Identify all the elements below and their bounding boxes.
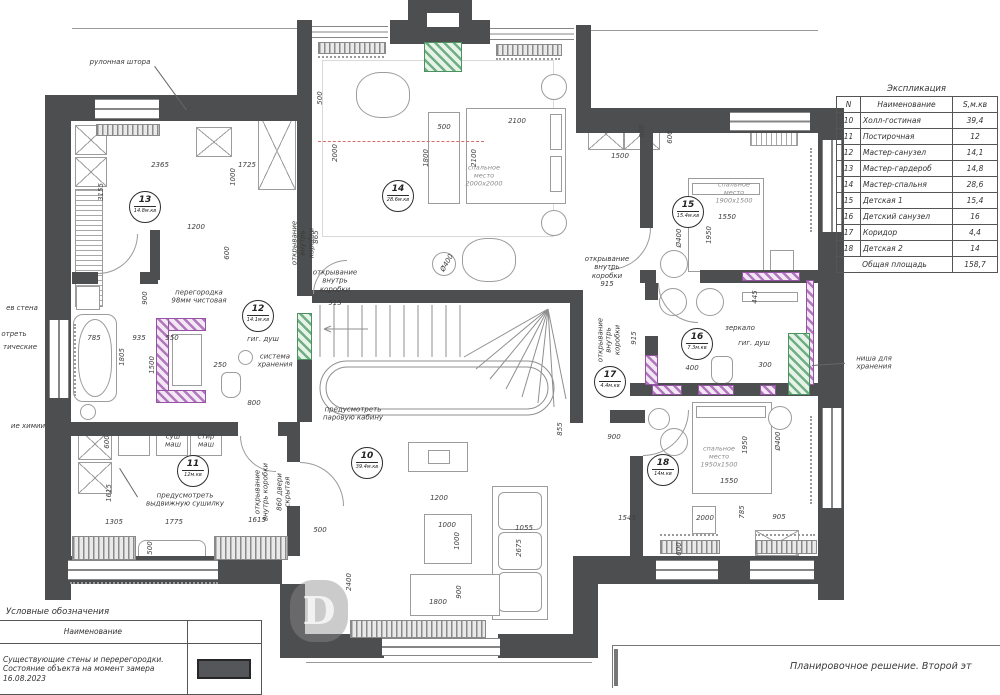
wall [610, 410, 645, 423]
dimension-label: 2400 [345, 573, 353, 591]
dimension-label: 1055 [515, 524, 533, 532]
dimension-label: 1800 [422, 149, 430, 167]
plan-annotation: перегородка 98мм чистовая [171, 289, 226, 306]
room-badge: 1314.8м.кв [129, 191, 161, 223]
shelf-unit [258, 112, 296, 190]
explication-row: 11Постирочная12 [837, 129, 998, 145]
bathtub-inner [78, 319, 112, 397]
dimension-label: 1000 [453, 532, 461, 550]
plan-annotation: предусмотреть выдвижную сушилку [146, 492, 224, 509]
room-badge: 1214.1м.кв [242, 300, 274, 332]
wall [297, 122, 312, 296]
plan-annotation: суш маш [165, 433, 181, 450]
room-name: Постирочная [861, 129, 953, 145]
room-number: 16 [837, 209, 861, 225]
total-label: Общая площадь [837, 257, 953, 273]
room-number: 17 [837, 225, 861, 241]
toilet [711, 356, 733, 384]
dimension-label: 785 [738, 505, 746, 518]
new-partition [698, 385, 734, 395]
dimension-label: 800 [247, 399, 260, 407]
dimension-label: 3155 [97, 183, 105, 201]
outline-line [72, 28, 298, 29]
radiator [72, 536, 136, 560]
room-badge: 1515.4м.кв [672, 196, 704, 228]
window [656, 560, 718, 580]
dimension-label: 900 [141, 291, 149, 304]
dimension-label: 1200 [430, 494, 448, 502]
new-partition [156, 390, 206, 403]
new-partition [652, 385, 682, 395]
dimension-label: 1725 [238, 161, 256, 169]
wall [287, 436, 300, 462]
room-number: 10 [837, 113, 861, 129]
room-badge: 1112м.кв [177, 455, 209, 487]
curtain-wave [810, 148, 812, 232]
plan-annotation: спальное место 1900х1500 [716, 181, 753, 204]
room-area: 14 [953, 241, 998, 257]
radiator [214, 536, 288, 560]
stairs [312, 303, 568, 421]
dimension-label: 1805 [118, 348, 126, 366]
dimension-label: 865 [312, 230, 320, 243]
frame-line [612, 645, 1000, 646]
dimension-label: 900 [607, 433, 620, 441]
door-swing [658, 283, 698, 323]
dimension-label: 500 [437, 123, 450, 131]
plan-annotation: предусмотреть паровую кабину [323, 406, 383, 423]
sheet-title: Планировочное решение. Второй эт [790, 661, 972, 672]
explication-header-row: N Наименование S,м.кв [837, 97, 998, 113]
room-number: 18 [837, 241, 861, 257]
symbols-legend-text: Существующие стены и перерегородки. Сост… [0, 644, 187, 695]
frame-line [612, 645, 613, 688]
symbols-legend: Условные обозначения Наименование Сущест… [0, 607, 262, 695]
dimension-label: 600 [103, 435, 111, 448]
dimension-label: 2365 [151, 161, 169, 169]
room-name: Мастер-спальня [861, 177, 953, 193]
explication-row: 17Коридор4,4 [837, 225, 998, 241]
curtain-wave [496, 58, 560, 60]
new-partition [742, 272, 800, 281]
existing-wall-symbol [197, 659, 251, 679]
dimension-label: 900 [455, 585, 463, 598]
room-area: 12 [953, 129, 998, 145]
room-badge: 174.4м.кв [594, 366, 626, 398]
explication-row: 14Мастер-спальня28,6 [837, 177, 998, 193]
room-badge: 1814м.кв [647, 454, 679, 486]
plan-annotation: отреть [1, 330, 26, 338]
dimension-label: 1550 [720, 477, 738, 485]
dimension-label: 2675 [515, 539, 523, 557]
plan-annotation: открывание внутрь коробки [596, 318, 621, 362]
dimension-label: 1615 [248, 516, 266, 524]
plan-annotation: зеркало [725, 324, 755, 332]
explication-rows: N Наименование S,м.кв 10Холл-гостиная39,… [837, 97, 998, 257]
wall [640, 270, 656, 283]
radiator [318, 42, 386, 54]
wall [278, 422, 300, 436]
dimension-label: 2100 [470, 149, 478, 167]
wall [297, 360, 312, 422]
dimension-label: 250 [213, 361, 226, 369]
dimension-label: 935 [132, 334, 145, 342]
dimension-label: 785 [87, 334, 100, 342]
room-number: 11 [837, 129, 861, 145]
room-name: Мастер-санузел [861, 145, 953, 161]
dimension-label: 1305 [105, 518, 123, 526]
dimension-label: 1500 [148, 356, 156, 374]
room-name: Детская 2 [861, 241, 953, 257]
room-number: 12 [837, 145, 861, 161]
wall [630, 456, 643, 556]
new-partition [760, 385, 776, 395]
room-number: 14 [837, 177, 861, 193]
radiator [660, 540, 720, 554]
dimension-label: 600 [666, 130, 674, 143]
room-number: 15 [837, 193, 861, 209]
armchair [462, 238, 516, 282]
toilet [221, 372, 241, 398]
wall [573, 556, 598, 636]
room-name: Мастер-гардероб [861, 161, 953, 177]
radiator [350, 620, 486, 638]
dimension-label: 1545 [618, 514, 636, 522]
explication-total-row: Общая площадь 158,7 [837, 257, 998, 273]
curtain-wave [70, 582, 218, 584]
wall [297, 20, 312, 122]
new-partition [645, 355, 658, 385]
centerline [318, 141, 484, 142]
dimension-label: 2000 [696, 514, 714, 522]
dimension-label: 1615 [105, 484, 113, 502]
door-swing [300, 462, 344, 506]
door-swing [98, 234, 138, 274]
chimney-notch [426, 12, 460, 28]
window [382, 638, 500, 656]
curtain-wave [810, 416, 812, 504]
dimension-label: 1800 [429, 598, 447, 606]
plan-annotation: стир маш [198, 433, 215, 450]
plan-annotation: ев стена [6, 304, 38, 312]
dimension-label: 2000 [331, 144, 339, 162]
nightstand [541, 74, 567, 100]
plan-annotation: спальное место 1950х1500 [701, 445, 738, 468]
plan-annotation: открывание внутрь коробки [254, 463, 271, 521]
room-badge: 1428.6м.кв [382, 180, 414, 212]
plan-annotation: открывание внутрь коробки 915 [585, 255, 629, 289]
col-header-area: S,м.кв [953, 97, 998, 113]
plan-annotation: гиг. душ [247, 335, 279, 343]
watermark-logo: D [290, 580, 348, 642]
dimension-label: 445 [751, 290, 759, 303]
col-header-n: N [837, 97, 861, 113]
wall [640, 133, 653, 228]
room-name: Детская 1 [861, 193, 953, 209]
window [750, 560, 814, 580]
dimension-label: 905 [772, 513, 785, 521]
room-area: 15,4 [953, 193, 998, 209]
symbols-legend-header: Наименование [0, 621, 187, 644]
explication-row: 15Детская 115,4 [837, 193, 998, 209]
window [95, 99, 159, 119]
room-area: 28,6 [953, 177, 998, 193]
dimension-label: 600 [223, 246, 231, 259]
pillow [696, 406, 766, 418]
wall [287, 506, 300, 556]
nightstand [541, 210, 567, 236]
wall [72, 272, 98, 284]
plan-annotation: ие химии [11, 422, 45, 430]
dimension-label: 550 [165, 334, 178, 342]
symbols-legend-title: Условные обозначения [6, 607, 262, 617]
plan-annotation: 860 двери скрытая [276, 473, 293, 511]
dimension-label: 915 [630, 331, 638, 344]
explication-row: 13Мастер-гардероб14,8 [837, 161, 998, 177]
dimension-label: 855 [556, 422, 564, 435]
explication-row: 10Холл-гостиная39,4 [837, 113, 998, 129]
dimension-label: 915 [328, 299, 341, 307]
window [822, 408, 842, 508]
room-area: 14,1 [953, 145, 998, 161]
plan-annotation: Ø400 [675, 229, 683, 248]
dimension-label: 500 [316, 91, 324, 104]
explication-row: 16Детский санузел16 [837, 209, 998, 225]
pillow [550, 114, 562, 150]
room-badge: 1039.4м.кв [351, 447, 383, 479]
curtain-wave [660, 534, 718, 536]
symbols-legend-symbol-cell [187, 644, 261, 695]
room-name: Коридор [861, 225, 953, 241]
symbols-legend-header-empty [187, 621, 261, 644]
curtain-wave [755, 534, 815, 536]
wall [645, 283, 658, 300]
dimension-label: 1550 [718, 213, 736, 221]
dimension-label: 500 [313, 526, 326, 534]
room-name: Холл-гостиная [861, 113, 953, 129]
room-badge: 167.3м.кв [681, 328, 713, 360]
explication-title: Экспликация [836, 84, 997, 94]
chair [768, 406, 792, 430]
window [312, 26, 388, 38]
armchair [356, 72, 410, 118]
wall [150, 230, 160, 280]
plan-annotation: открывание внутрь коробки [313, 268, 357, 293]
title-block-grid [614, 649, 618, 686]
plan-annotation: тические [3, 343, 37, 351]
total-value: 158,7 [953, 257, 998, 273]
room-area: 16 [953, 209, 998, 225]
room-area: 4,4 [953, 225, 998, 241]
leader-line [119, 468, 138, 497]
dimension-label: 400 [685, 364, 698, 372]
radiator [496, 44, 562, 56]
window [490, 28, 574, 40]
tv [428, 450, 450, 464]
dimension-label: 1000 [229, 168, 237, 186]
sofa-cushion [498, 572, 542, 612]
dimension-label: 500 [146, 541, 154, 554]
pillow [550, 156, 562, 192]
curtain-wave [318, 56, 384, 58]
plan-annotation: Ø400 [774, 432, 782, 451]
explication-table: Экспликация N Наименование S,м.кв 10Холл… [836, 84, 997, 273]
fireplace-niche [424, 42, 462, 72]
explication-row: 12Мастер-санузел14,1 [837, 145, 998, 161]
dimension-label: 1775 [165, 518, 183, 526]
plan-annotation: система хранения [257, 353, 292, 370]
dimension-label: 1500 [611, 152, 629, 160]
chair [660, 250, 688, 278]
washbasin [76, 286, 100, 310]
plan-annotation: рулонная штора [90, 58, 151, 66]
outline-line [590, 30, 818, 31]
plan-annotation: спальное место 2000х2000 [466, 164, 503, 187]
dimension-label: 600 [675, 542, 683, 555]
room-area: 39,4 [953, 113, 998, 129]
plan-annotation: гиг. душ [738, 339, 770, 347]
room-number: 13 [837, 161, 861, 177]
radiator [96, 124, 160, 136]
window [68, 560, 218, 580]
dimension-label: 1950 [741, 436, 749, 454]
storage-niche [788, 333, 810, 395]
drain-icon [80, 404, 96, 420]
dimension-label: 300 [758, 361, 771, 369]
wall [570, 296, 583, 423]
radiator [755, 540, 817, 554]
window [49, 320, 69, 398]
dimension-label: 1200 [187, 223, 205, 231]
dresser [770, 250, 794, 272]
wardrobe-unit [196, 127, 232, 157]
explication-row: 18Детская 214 [837, 241, 998, 257]
hygienic-shower [238, 350, 253, 365]
col-header-name: Наименование [861, 97, 953, 113]
terrace-line [306, 662, 592, 663]
wall [45, 95, 302, 121]
dimension-label: 1000 [438, 521, 456, 529]
sink [696, 288, 724, 316]
wall [498, 634, 598, 658]
dimension-label: 500 [638, 124, 646, 137]
storage-niche [297, 313, 312, 360]
dimension-label: 2100 [508, 117, 526, 125]
window [730, 112, 810, 131]
room-name: Детский санузел [861, 209, 953, 225]
plan-annotation: ниша для хранения [856, 355, 892, 372]
dimension-label: 1950 [705, 226, 713, 244]
room-area: 14,8 [953, 161, 998, 177]
curtain-wave [74, 324, 76, 396]
